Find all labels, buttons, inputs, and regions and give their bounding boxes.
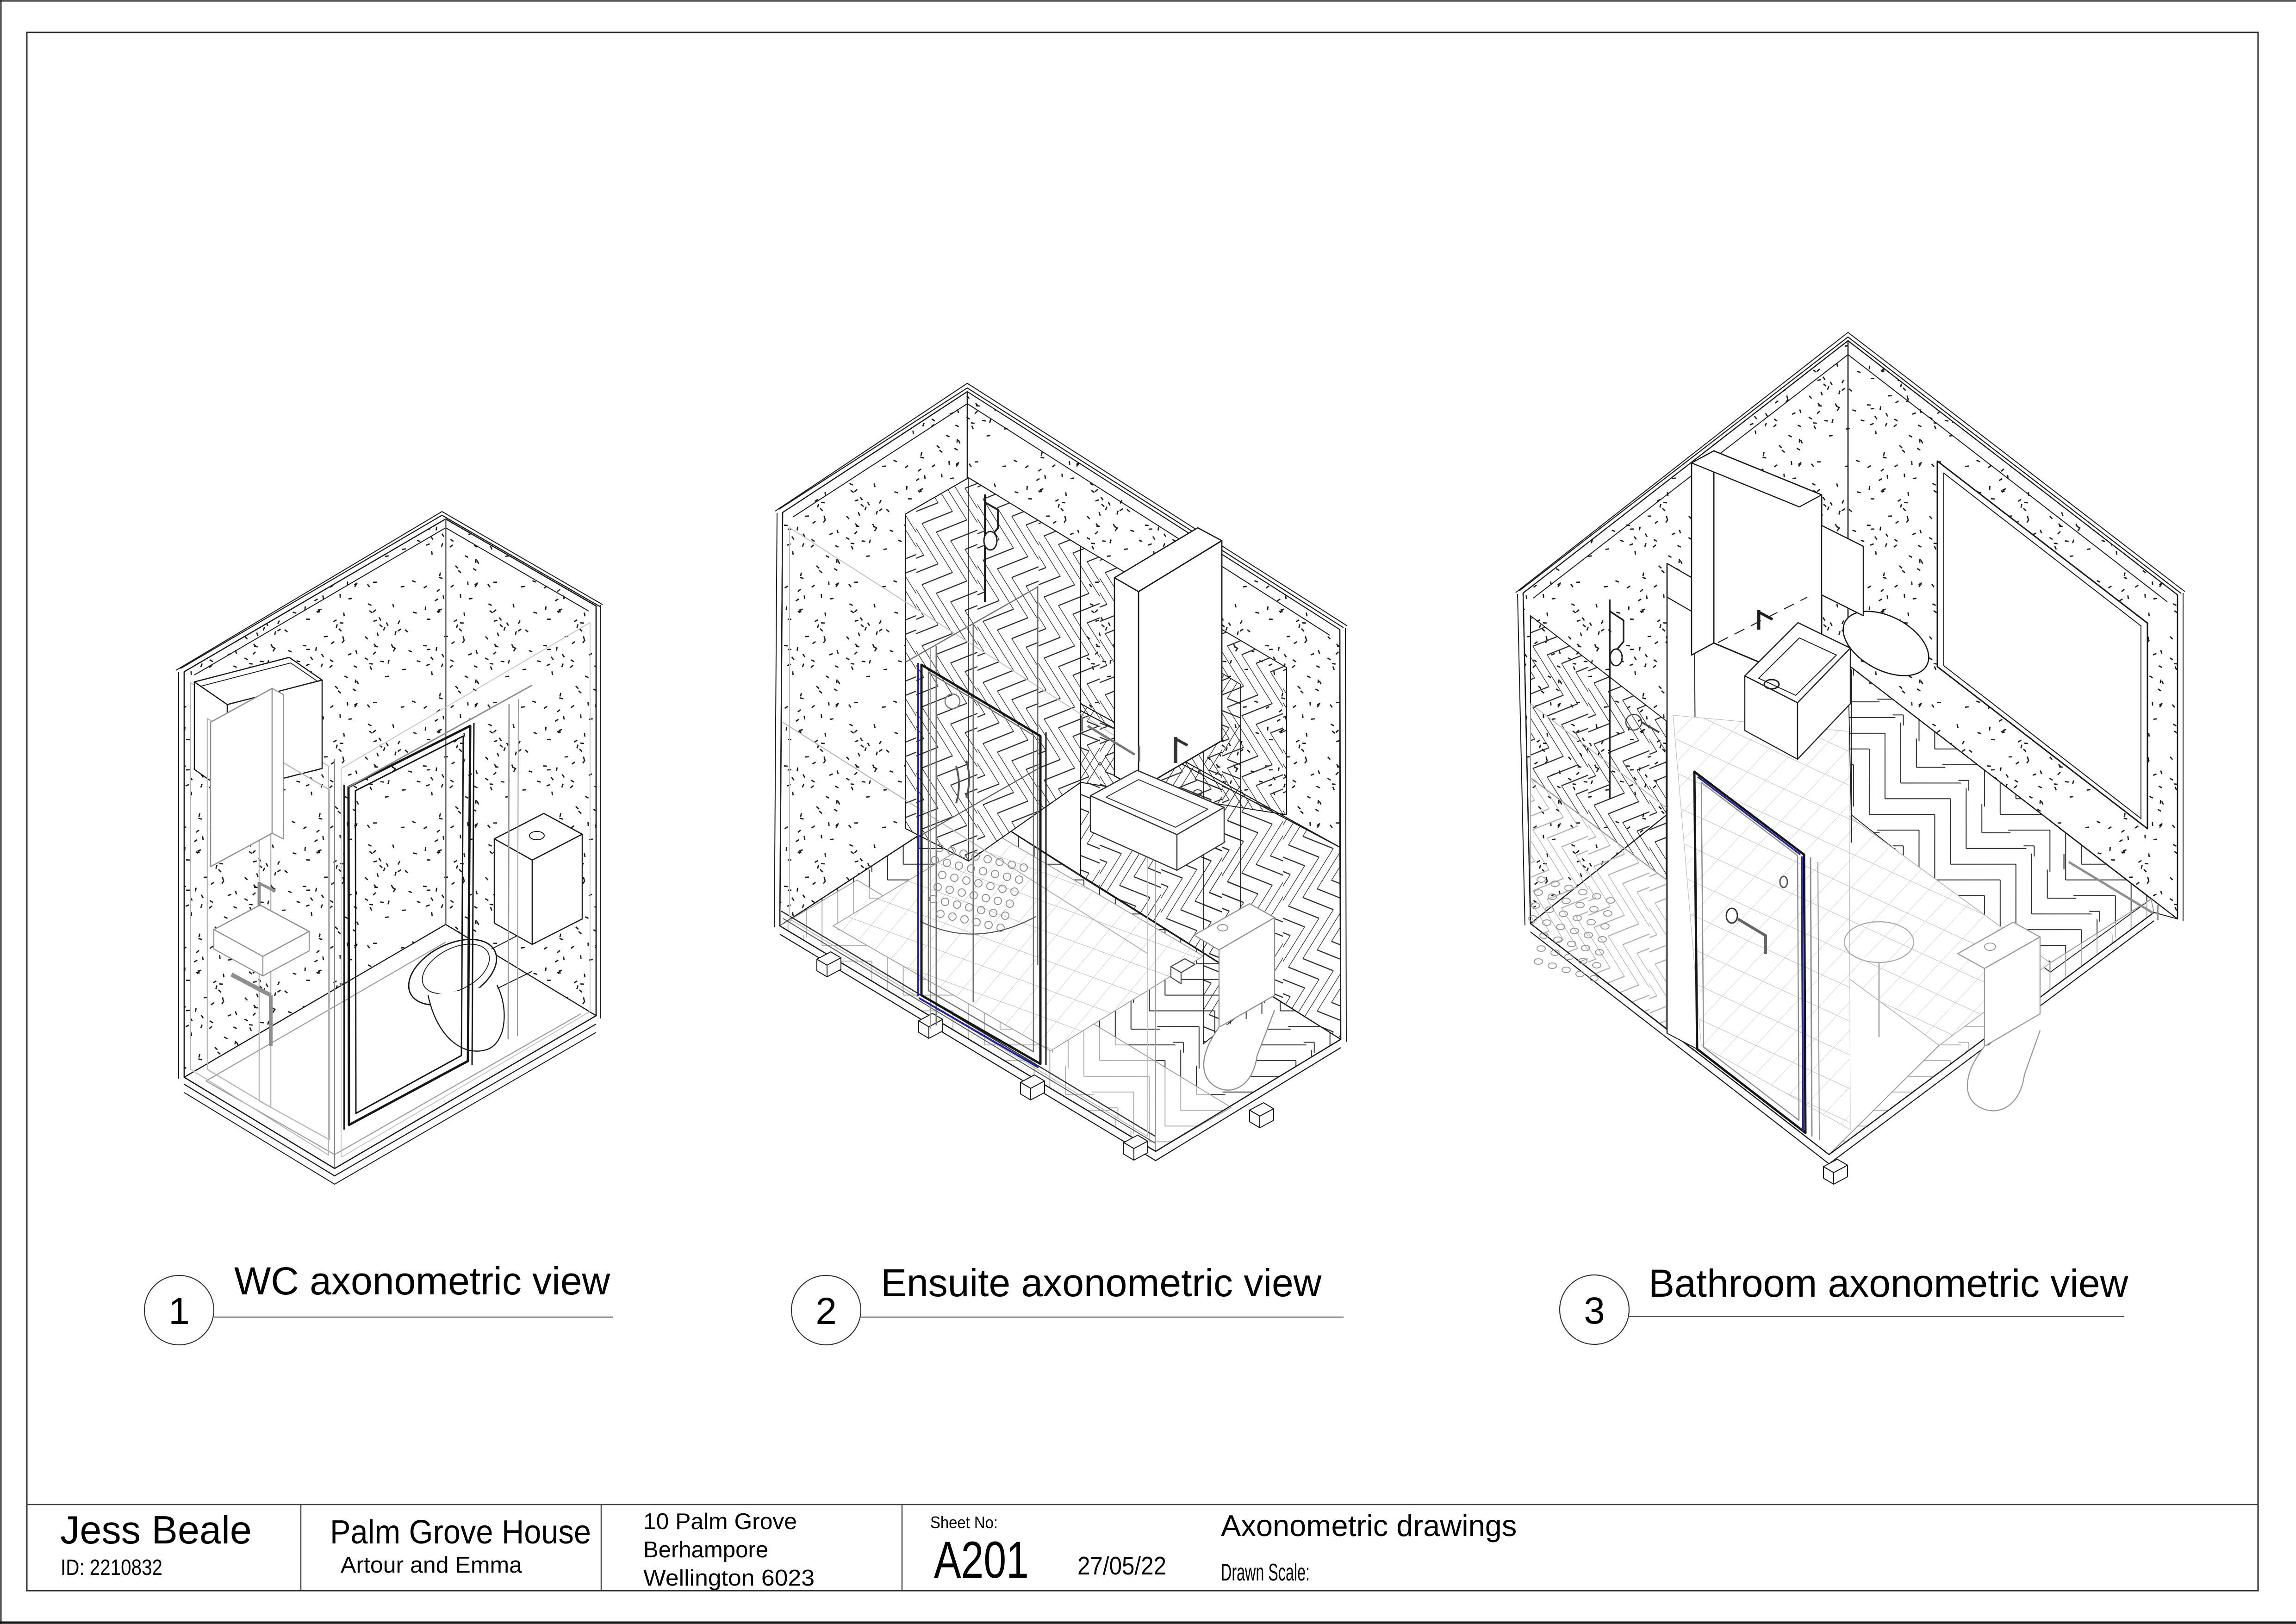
svg-text:10 Palm Grove: 10 Palm Grove	[643, 1509, 797, 1534]
svg-text:Palm Grove House: Palm Grove House	[330, 1514, 591, 1551]
svg-text:Drawn Scale:: Drawn Scale:	[1221, 1559, 1310, 1586]
svg-text:Jess Beale: Jess Beale	[60, 1508, 252, 1552]
svg-text:Ensuite axonometric view: Ensuite axonometric view	[881, 1261, 1322, 1305]
svg-text:1: 1	[168, 1290, 190, 1332]
svg-text:Berhampore: Berhampore	[643, 1537, 768, 1562]
svg-text:Axonometric drawings: Axonometric drawings	[1221, 1509, 1517, 1543]
svg-text:Artour and Emma: Artour and Emma	[341, 1553, 523, 1578]
svg-text:Wellington 6023: Wellington 6023	[643, 1566, 815, 1591]
svg-text:A201: A201	[934, 1531, 1029, 1589]
svg-text:3: 3	[1584, 1290, 1605, 1332]
svg-text:WC axonometric view: WC axonometric view	[234, 1259, 610, 1303]
svg-text:Sheet No:: Sheet No:	[930, 1513, 998, 1532]
svg-text:27/05/22: 27/05/22	[1077, 1551, 1166, 1580]
svg-text:Bathroom axonometric view: Bathroom axonometric view	[1649, 1262, 2128, 1305]
svg-text:2: 2	[815, 1290, 837, 1332]
svg-text:ID: 2210832: ID: 2210832	[61, 1555, 162, 1580]
